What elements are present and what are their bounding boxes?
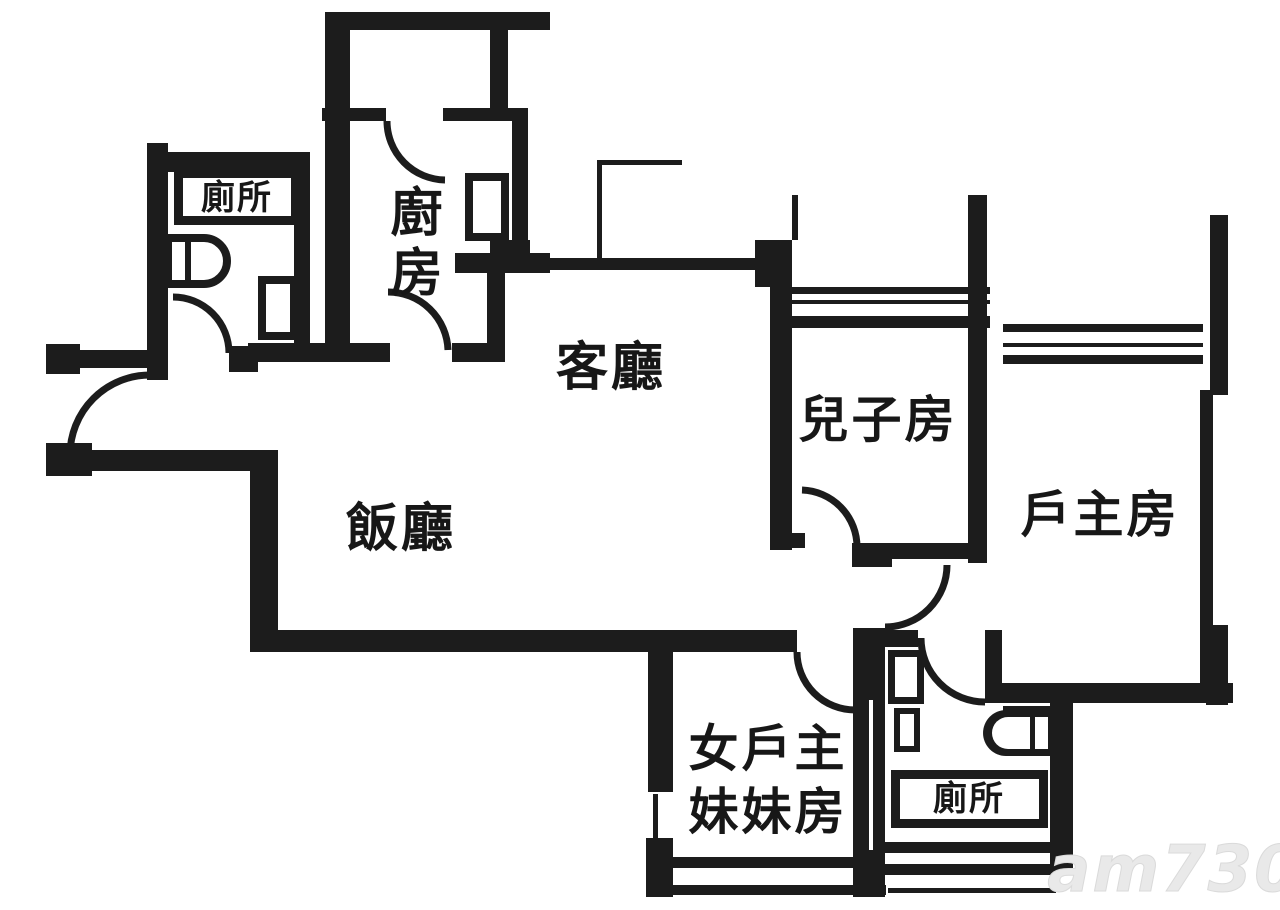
wall: [512, 118, 528, 242]
wall: [852, 543, 985, 559]
room-label-dining: 飯廳: [346, 499, 456, 559]
room-label-kitchen-char-1: 廚: [390, 184, 445, 244]
room-label-sisters-room-line-1: 女戶主: [689, 720, 848, 778]
wall: [770, 240, 792, 550]
room-label-kitchen-char-2: 房: [390, 244, 445, 304]
wall-door-jamb: [985, 630, 1002, 703]
cistern-fixture-inner: [900, 714, 914, 746]
window-line: [888, 888, 1056, 893]
wall: [1000, 683, 1233, 703]
wall: [250, 630, 797, 652]
wall: [46, 450, 278, 471]
room-label-living: 客廳: [556, 338, 666, 398]
wall: [770, 533, 805, 548]
wall: [1210, 215, 1228, 395]
wall: [248, 343, 390, 362]
wall: [325, 15, 350, 362]
toilet-tank-line: [185, 238, 191, 284]
window-sill: [790, 316, 990, 328]
wall: [46, 350, 168, 368]
wall-door-jamb: [852, 557, 892, 567]
window-line: [790, 287, 990, 294]
wall: [325, 12, 550, 30]
room-label-master-room: 戶主房: [1021, 486, 1180, 544]
cistern-fixture-inner: [895, 657, 917, 697]
terrace-line: [597, 160, 682, 165]
wall: [882, 630, 918, 647]
window-sill: [1003, 355, 1203, 364]
basin-fixture-inner: [992, 717, 1048, 749]
window-line: [878, 842, 1070, 853]
wall: [648, 640, 673, 792]
floor-plan-canvas: 廁所 廚 房 客廳 飯廳 兒子房 戶主房 女戶主 妹妹房 廁所 am730: [0, 0, 1280, 910]
terrace-line: [597, 160, 602, 268]
window-line: [668, 857, 880, 868]
window-line: [878, 864, 1072, 875]
room-label-sons-room: 兒子房: [799, 391, 958, 449]
wall-seam: [869, 700, 873, 850]
watermark-am730: am730: [1047, 833, 1280, 907]
window-line: [1003, 324, 1203, 332]
cistern-fixture-inner: [266, 284, 290, 332]
window-line: [790, 300, 990, 304]
wall: [487, 268, 505, 362]
window-line: [668, 885, 886, 895]
room-label-toilet-lower: 廁所: [933, 779, 1005, 819]
room-label-toilet-upper: 廁所: [201, 178, 273, 218]
wall-spur: [792, 195, 798, 240]
toilet-bowl-icon: [168, 238, 227, 284]
wall: [322, 108, 386, 121]
basin-divider-line: [1030, 712, 1035, 754]
window-line: [1003, 343, 1203, 347]
wall: [490, 30, 508, 110]
wall: [250, 450, 278, 652]
kitchen-sink-inner: [473, 181, 501, 233]
wall: [455, 253, 550, 273]
wall: [968, 195, 987, 563]
window-line: [545, 258, 759, 270]
room-label-sisters-room-line-2: 妹妹房: [689, 783, 848, 841]
